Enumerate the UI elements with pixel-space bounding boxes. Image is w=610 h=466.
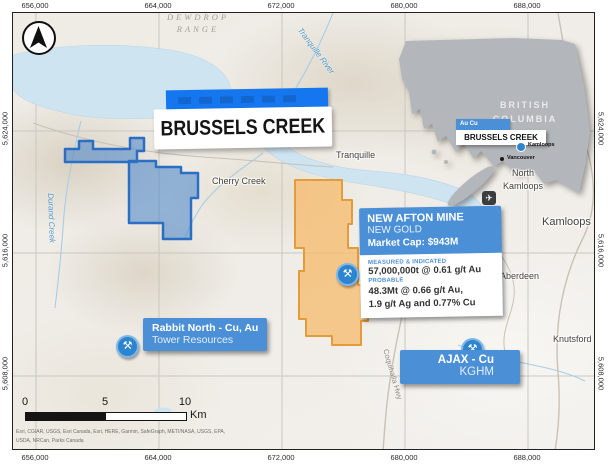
scale-tick-5: 5 — [99, 396, 111, 408]
scale-tick-0: 0 — [19, 396, 31, 408]
new-afton-owner: NEW GOLD — [367, 223, 493, 236]
rabbit-north-marker: ⚒ — [116, 335, 139, 358]
scale-bar — [25, 412, 187, 421]
hammer-pick-icon: ⚒ — [123, 340, 133, 352]
ajax-title: AJAX - Cu — [408, 354, 494, 366]
grid-label-bottom: 680,000 — [369, 453, 439, 462]
ajax-callout: AJAX - Cu KGHM — [400, 350, 520, 384]
grid-label-right: 5,616,000 — [597, 216, 606, 286]
north-arrow-icon — [22, 21, 56, 55]
inset-commodity-tag: Au Cu — [456, 119, 510, 130]
scale-tick-10: 10 — [175, 396, 195, 408]
scale-bar-filled — [26, 413, 106, 420]
map-figure: 656,000 664,000 672,000 680,000 688,000 … — [0, 0, 610, 466]
hammer-pick-icon: ⚒ — [343, 268, 353, 280]
knutsford-label: Knutsford — [553, 334, 592, 344]
grid-label-top: 672,000 — [246, 1, 316, 10]
scale-bar-empty — [106, 413, 186, 420]
airport-icon: ✈ — [482, 191, 496, 205]
grid-label-bottom: 664,000 — [123, 453, 193, 462]
grid-label-left: 5,624,000 — [1, 94, 10, 164]
new-afton-callout: NEW AFTON MINE NEW GOLD Market Cap: $943… — [359, 206, 503, 318]
title-bar-marks — [178, 95, 298, 104]
grid-label-bottom: 672,000 — [246, 453, 316, 462]
grid-label-top: 656,000 — [0, 1, 70, 10]
durand-creek-label: Durand Creek — [46, 193, 57, 243]
resource-class-label: PROBABLE — [368, 276, 494, 284]
tranquille-label: Tranquille — [336, 150, 375, 160]
grid-label-right: 5,624,000 — [597, 94, 606, 164]
grid-label-bottom: 656,000 — [0, 453, 70, 462]
grid-label-bottom: 688,000 — [492, 453, 562, 462]
grid-label-right: 5,608,000 — [597, 339, 606, 409]
grid-label-left: 5,608,000 — [1, 339, 10, 409]
aberdeen-label: Aberdeen — [500, 271, 539, 281]
rabbit-north-owner: Tower Resources — [152, 334, 258, 346]
north-kamloops-label: North Kamloops — [496, 167, 550, 193]
inset-kamloops-marker — [516, 142, 526, 152]
airplane-icon: ✈ — [485, 193, 493, 203]
kamloops-label: Kamloops — [542, 216, 591, 228]
inset-vancouver-marker — [500, 157, 504, 161]
scale-unit-label: Km — [190, 409, 207, 421]
map-shapes-layer — [13, 13, 595, 450]
grid-label-left: 5,616,000 — [1, 216, 10, 286]
attribution-text: Esri, CGIAR, USGS, Esri Canada, Esri, HE… — [16, 428, 286, 445]
ajax-owner: KGHM — [408, 366, 494, 378]
inset-vancouver-label: Vancouver — [507, 155, 535, 161]
map-title-card: BRUSSELS CREEK — [154, 106, 333, 149]
grid-label-top: 680,000 — [369, 1, 439, 10]
resource-value: 1.9 g/t Ag and 0.77% Cu — [369, 297, 495, 312]
dewdrop-range-label: DEWDROP RANGE — [148, 12, 248, 36]
map-title: BRUSSELS CREEK — [160, 115, 325, 142]
new-afton-mine-marker: ⚒ — [336, 263, 359, 286]
map-frame — [12, 12, 595, 450]
brussels-creek-claim — [65, 138, 198, 239]
rabbit-north-title: Rabbit North - Cu, Au — [152, 322, 258, 334]
new-afton-market-cap: Market Cap: $943M — [368, 236, 494, 249]
new-afton-claim — [295, 180, 368, 345]
grid-label-top: 664,000 — [123, 1, 193, 10]
inset-kamloops-label: Kamloops — [528, 142, 555, 148]
grid-label-top: 688,000 — [492, 1, 562, 10]
cherry-creek-label: Cherry Creek — [212, 176, 266, 186]
rabbit-north-callout: Rabbit North - Cu, Au Tower Resources — [143, 318, 267, 351]
